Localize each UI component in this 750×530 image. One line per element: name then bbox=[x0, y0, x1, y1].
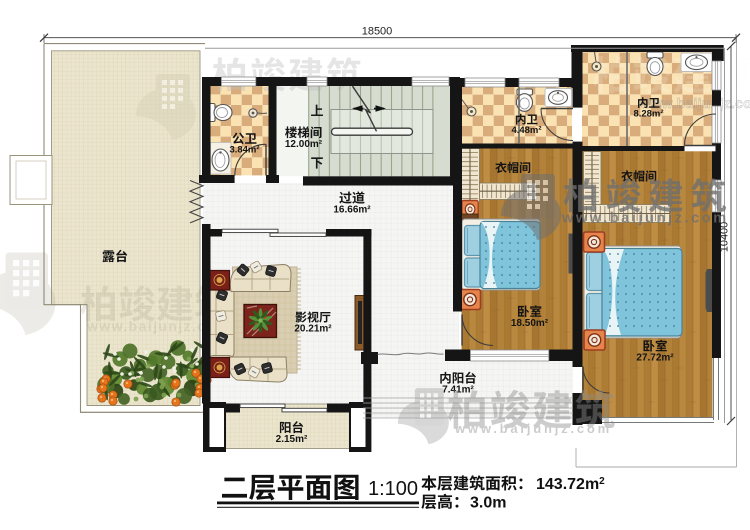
svg-text:16.66m²: 16.66m² bbox=[333, 205, 371, 216]
svg-text:8.28m²: 8.28m² bbox=[633, 109, 663, 120]
svg-text:www.baijunjz.com: www.baijunjz.com bbox=[454, 421, 612, 436]
svg-text:12.00m²: 12.00m² bbox=[285, 139, 323, 150]
svg-text:2.15m²: 2.15m² bbox=[276, 434, 308, 445]
svg-text:20.21m²: 20.21m² bbox=[294, 324, 332, 335]
svg-text:7.41m²: 7.41m² bbox=[442, 385, 474, 396]
svg-text:27.72m²: 27.72m² bbox=[636, 353, 674, 364]
svg-text:18500: 18500 bbox=[362, 26, 393, 38]
svg-text:18.50m²: 18.50m² bbox=[511, 318, 549, 329]
svg-text:1:100: 1:100 bbox=[368, 478, 418, 500]
svg-text:www.baijunjz.com: www.baijunjz.com bbox=[561, 211, 729, 227]
svg-text:3.84m²: 3.84m² bbox=[229, 145, 259, 156]
svg-text:4.48m²: 4.48m² bbox=[511, 125, 541, 136]
svg-text:143.72m2: 143.72m2 bbox=[536, 476, 605, 493]
svg-text:3.0m: 3.0m bbox=[470, 495, 506, 512]
